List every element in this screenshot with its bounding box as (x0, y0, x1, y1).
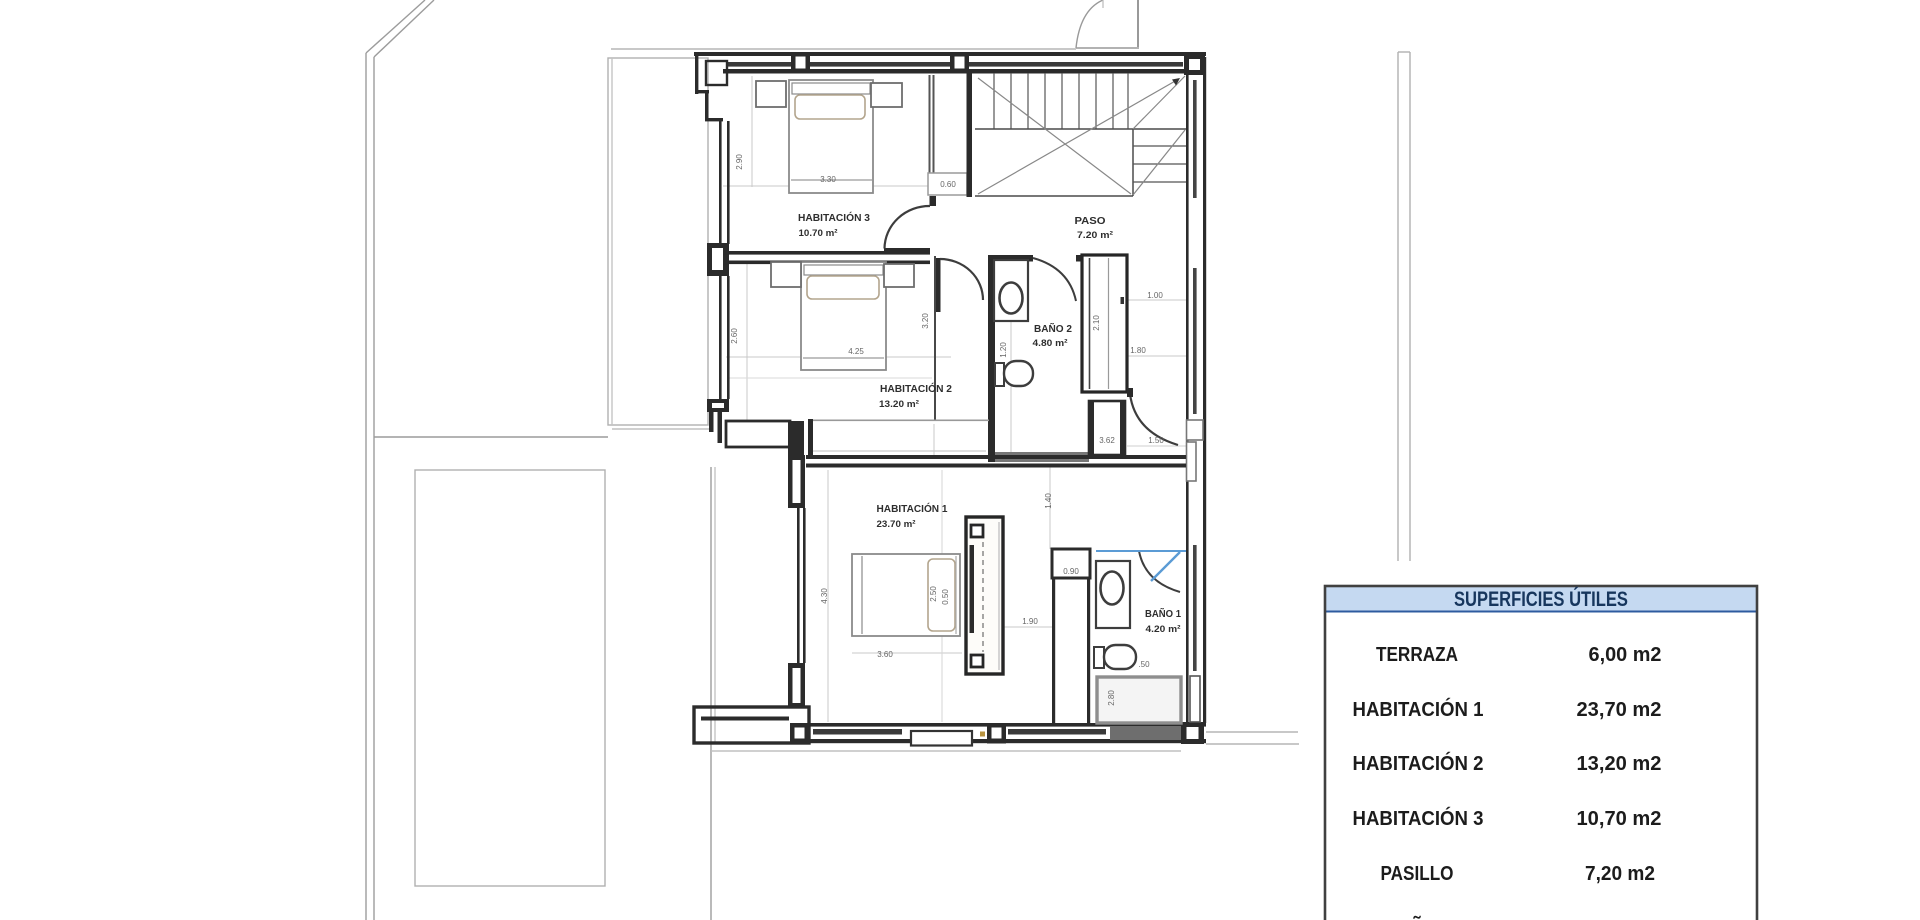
svg-text:3.60: 3.60 (877, 650, 893, 659)
svg-text:10.70 m²: 10.70 m² (799, 228, 838, 239)
svg-text:BAÑO 2: BAÑO 2 (1034, 322, 1072, 335)
svg-text:4.25: 4.25 (848, 347, 864, 356)
svg-text:0.90: 0.90 (1063, 567, 1079, 576)
svg-text:BAÑO 1: BAÑO 1 (1145, 607, 1181, 620)
svg-text:1.50: 1.50 (1148, 436, 1164, 445)
svg-text:23,70 m2: 23,70 m2 (1577, 699, 1662, 721)
svg-text:BAÑOS: BAÑOS (1381, 916, 1454, 920)
svg-text:1.80: 1.80 (1130, 346, 1146, 355)
svg-text:PASO: PASO (1075, 216, 1106, 227)
svg-text:10,70 m2: 10,70 m2 (1577, 808, 1662, 830)
svg-text:13,20 m2: 13,20 m2 (1577, 753, 1662, 775)
svg-text:13.20 m²: 13.20 m² (879, 399, 919, 410)
svg-text:HABITACIÓN 3: HABITACIÓN 3 (1353, 806, 1484, 830)
svg-text:4.30: 4.30 (820, 588, 829, 604)
svg-text:1.90: 1.90 (1022, 617, 1038, 626)
svg-text:0.60: 0.60 (940, 180, 956, 189)
svg-text:1.00: 1.00 (1147, 291, 1163, 300)
svg-text:SUPERFICIES ÚTILES: SUPERFICIES ÚTILES (1454, 586, 1628, 611)
svg-text:.50: .50 (1138, 660, 1150, 669)
svg-text:4.80 m²: 4.80 m² (1033, 338, 1068, 349)
svg-text:1.40: 1.40 (1044, 493, 1053, 509)
svg-text:TERRAZA: TERRAZA (1376, 644, 1458, 666)
svg-text:HABITACIÓN 1: HABITACIÓN 1 (877, 502, 948, 515)
svg-text:2.80: 2.80 (1107, 690, 1116, 706)
svg-text:3.62: 3.62 (1099, 436, 1115, 445)
svg-text:0.50: 0.50 (941, 589, 950, 605)
svg-text:7.20 m²: 7.20 m² (1077, 230, 1113, 241)
svg-text:HABITACIÓN 2: HABITACIÓN 2 (1353, 751, 1484, 775)
svg-text:HABITACIÓN 1: HABITACIÓN 1 (1353, 697, 1484, 721)
svg-text:4.20 m²: 4.20 m² (1146, 624, 1181, 635)
svg-text:3.20: 3.20 (921, 313, 930, 329)
svg-text:23.70 m²: 23.70 m² (877, 519, 916, 530)
svg-text:PASILLO: PASILLO (1381, 863, 1454, 885)
svg-text:7,20 m2: 7,20 m2 (1585, 863, 1655, 885)
svg-text:3.30: 3.30 (820, 175, 836, 184)
svg-text:HABITACIÓN 2: HABITACIÓN 2 (880, 382, 952, 395)
svg-text:2.10: 2.10 (1092, 315, 1101, 331)
svg-text:1.20: 1.20 (999, 342, 1008, 358)
svg-text:2.90: 2.90 (735, 154, 744, 170)
svg-text:HABITACIÓN 3: HABITACIÓN 3 (798, 211, 870, 224)
svg-text:2.60: 2.60 (730, 328, 739, 344)
svg-text:2.50: 2.50 (929, 586, 938, 602)
svg-text:6,00 m2: 6,00 m2 (1589, 644, 1662, 666)
